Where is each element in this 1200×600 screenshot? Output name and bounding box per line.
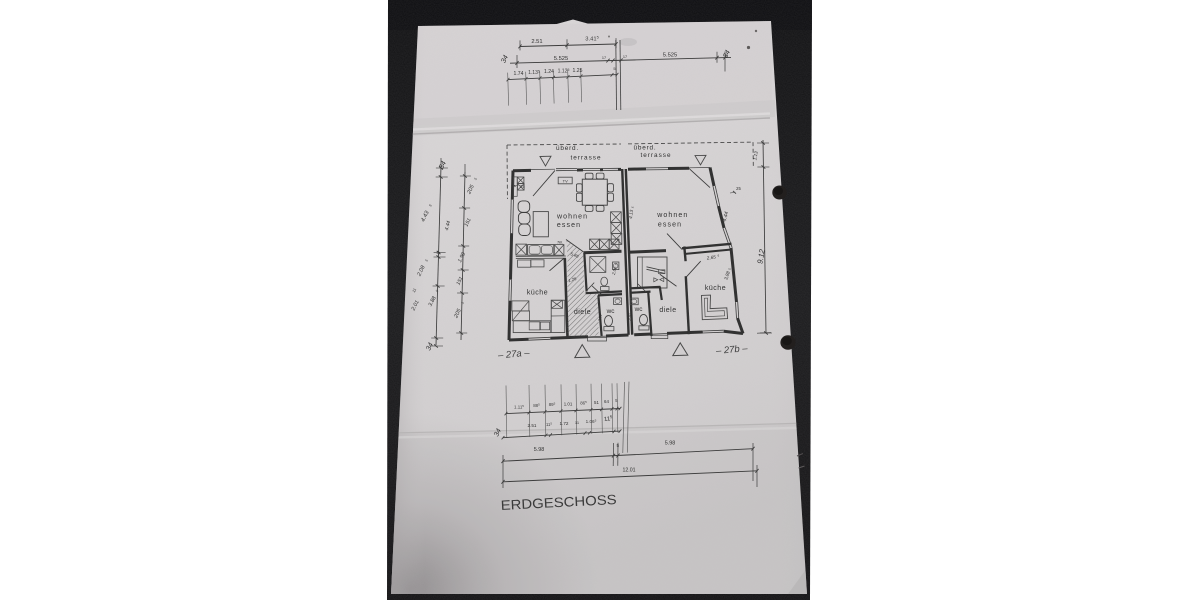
svg-text:diele: diele [574,309,591,316]
svg-text:TV: TV [563,178,568,183]
svg-text:1.74: 1.74 [514,71,524,77]
svg-text:2.51: 2.51 [528,423,537,428]
svg-text:terrasse: terrasse [640,152,671,159]
svg-text:5.98: 5.98 [534,447,545,453]
svg-text:essen: essen [557,222,581,229]
svg-text:1.25: 1.25 [573,68,583,74]
svg-text:wc: wc [634,306,644,313]
svg-text:64: 64 [604,399,609,404]
svg-text:5.525: 5.525 [663,53,678,59]
svg-text:diele: diele [659,307,676,314]
svg-text:5.525: 5.525 [554,56,569,62]
svg-text:12.01: 12.01 [623,468,636,474]
svg-text:wc: wc [606,308,616,315]
svg-text:küche: küche [527,289,548,296]
svg-text:küche: küche [705,285,726,292]
svg-text:5.98: 5.98 [665,441,676,447]
svg-text:1.01: 1.01 [564,402,573,407]
svg-text:überd.: überd. [634,145,657,152]
svg-text:überd.: überd. [556,145,579,152]
svg-text:51: 51 [594,400,599,405]
svg-text:terrasse: terrasse [570,154,601,161]
svg-text:25: 25 [736,186,741,191]
svg-text:wohnen: wohnen [656,212,688,219]
svg-text:2.51: 2.51 [531,39,542,45]
svg-text:17: 17 [602,56,606,60]
svg-text:1.24: 1.24 [544,69,554,75]
svg-text:Tel.: Tel. [557,240,563,245]
svg-text:17: 17 [623,55,627,59]
svg-text:5: 5 [617,443,620,448]
svg-text:wohnen: wohnen [556,214,588,221]
svg-text:essen: essen [658,222,682,229]
svg-text:1.72: 1.72 [560,421,569,426]
